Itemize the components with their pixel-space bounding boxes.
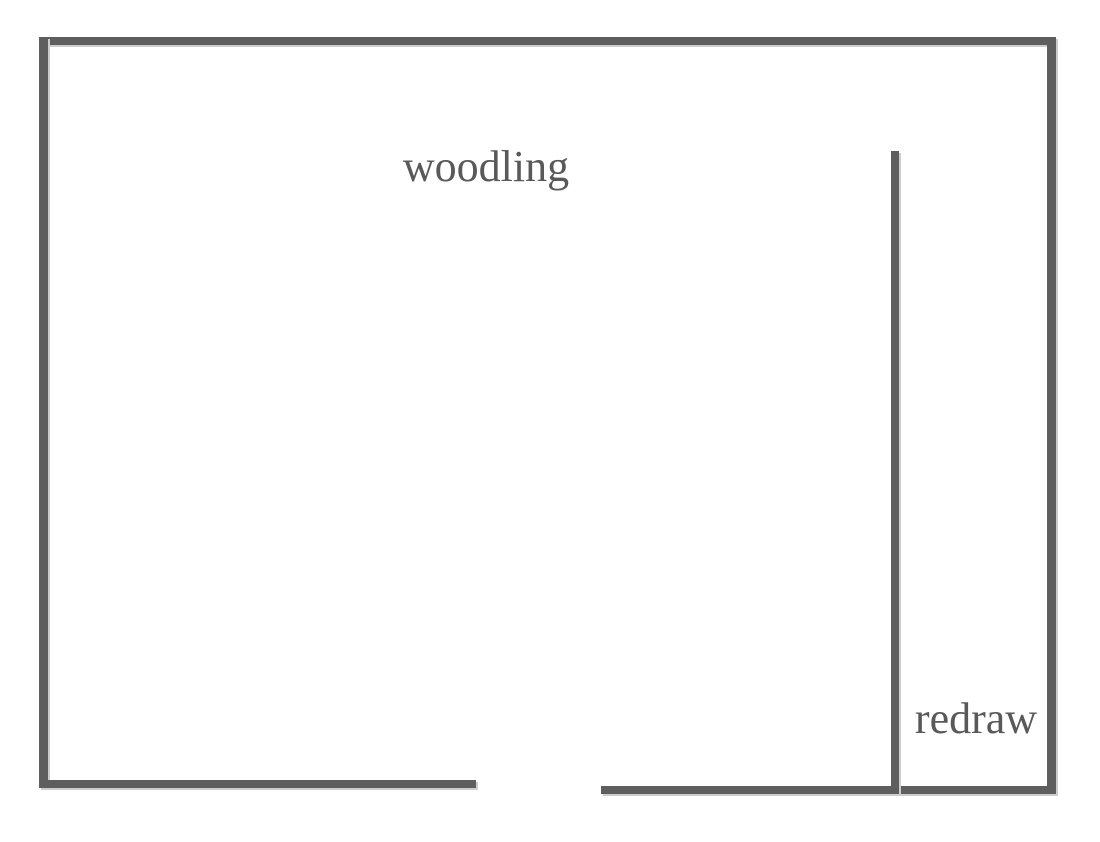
outer-wall-left xyxy=(39,37,48,788)
outer-wall-right xyxy=(1047,37,1056,794)
bottom-wall-left-segment xyxy=(39,780,476,788)
room-label-redraw: redraw xyxy=(915,697,1037,741)
floor-plan-canvas[interactable]: woodling redraw xyxy=(0,0,1100,842)
inner-partition-wall xyxy=(891,151,899,794)
bottom-wall-right-segment xyxy=(601,786,1056,794)
room-label-woodling: woodling xyxy=(403,145,569,189)
outer-wall-top xyxy=(39,37,1056,45)
